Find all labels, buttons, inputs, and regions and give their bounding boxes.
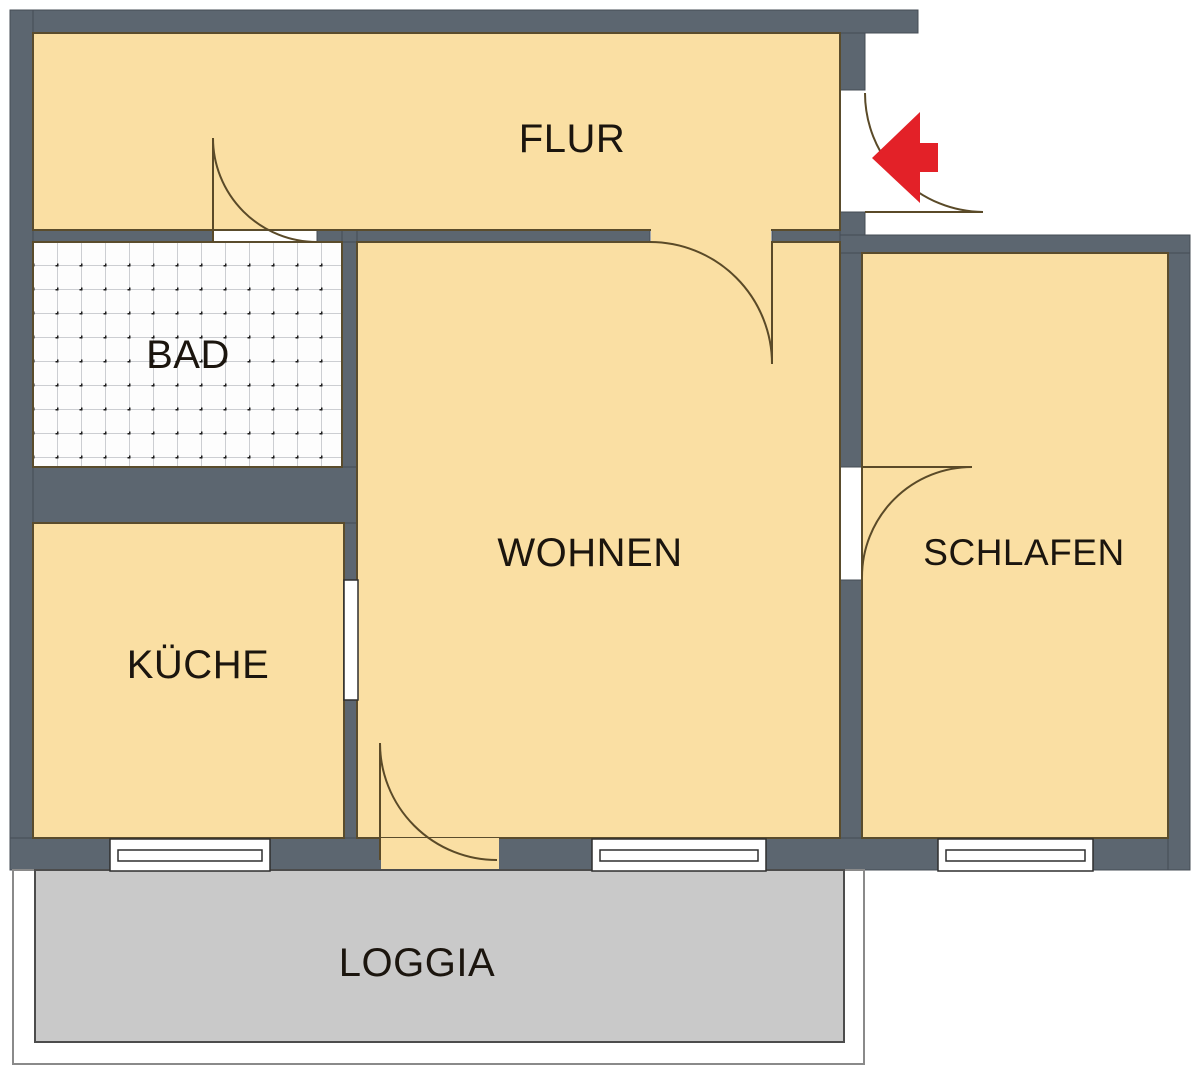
windows (110, 839, 1093, 871)
wall-flur-wohnen (317, 230, 650, 242)
entrance-arrow-icon (872, 112, 938, 203)
room-label-wohnen: WOHNEN (497, 531, 682, 575)
window-schlafen (938, 839, 1093, 871)
room-label-schlafen: SCHLAFEN (923, 532, 1124, 573)
wall-bad-top (33, 230, 213, 242)
wall-schlafen-top (840, 235, 1190, 253)
room-flur-floor (33, 33, 840, 230)
room-label-kueche: KÜCHE (127, 643, 270, 687)
wall-wohnen-schlafen-upper (840, 253, 862, 467)
wall-kueche-right-lower (344, 700, 358, 838)
wall-left (10, 10, 33, 870)
floor-plan: FLUR BAD WOHNEN SCHLAFEN KÜCHE LOGGIA (0, 0, 1200, 1077)
balcony-door-opening-floor (381, 838, 499, 872)
window-wohnen (592, 839, 766, 871)
wall-flur-right-upper (840, 33, 865, 90)
floor-plan-page: FLUR BAD WOHNEN SCHLAFEN KÜCHE LOGGIA (0, 0, 1200, 1077)
wall-bad-right (342, 242, 357, 467)
room-label-loggia: LOGGIA (339, 941, 495, 985)
room-label-flur: FLUR (519, 117, 625, 161)
wall-right (1168, 235, 1190, 870)
kueche-door-opening (344, 580, 358, 700)
wall-entry-pier (840, 212, 865, 235)
wall-bad-kueche (33, 467, 357, 523)
window-kueche (110, 839, 270, 871)
wall-wohnen-schlafen-lower (840, 580, 862, 838)
room-label-bad: BAD (146, 333, 230, 377)
wall-top (10, 10, 918, 33)
wall-flur-wohnen-right (772, 230, 840, 242)
wall-kueche-right-upper (344, 523, 358, 580)
